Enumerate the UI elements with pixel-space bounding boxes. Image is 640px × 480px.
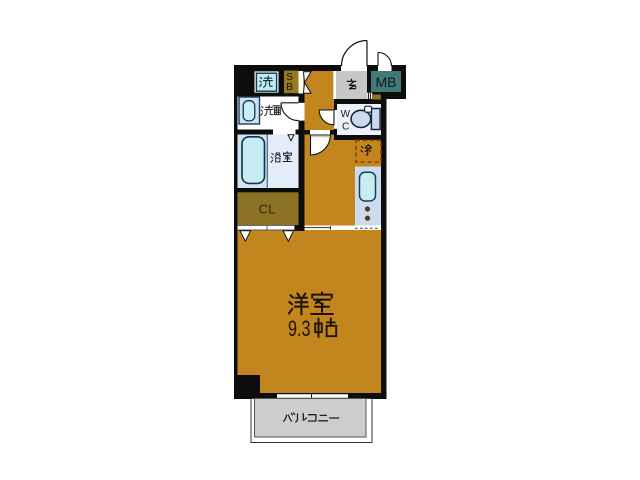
svg-text:W: W [341,109,351,120]
svg-text:MB: MB [376,75,397,90]
svg-text:B: B [286,82,293,93]
svg-text:CL: CL [259,203,276,217]
svg-text:C: C [342,122,349,133]
svg-text:9.3: 9.3 [288,316,311,341]
